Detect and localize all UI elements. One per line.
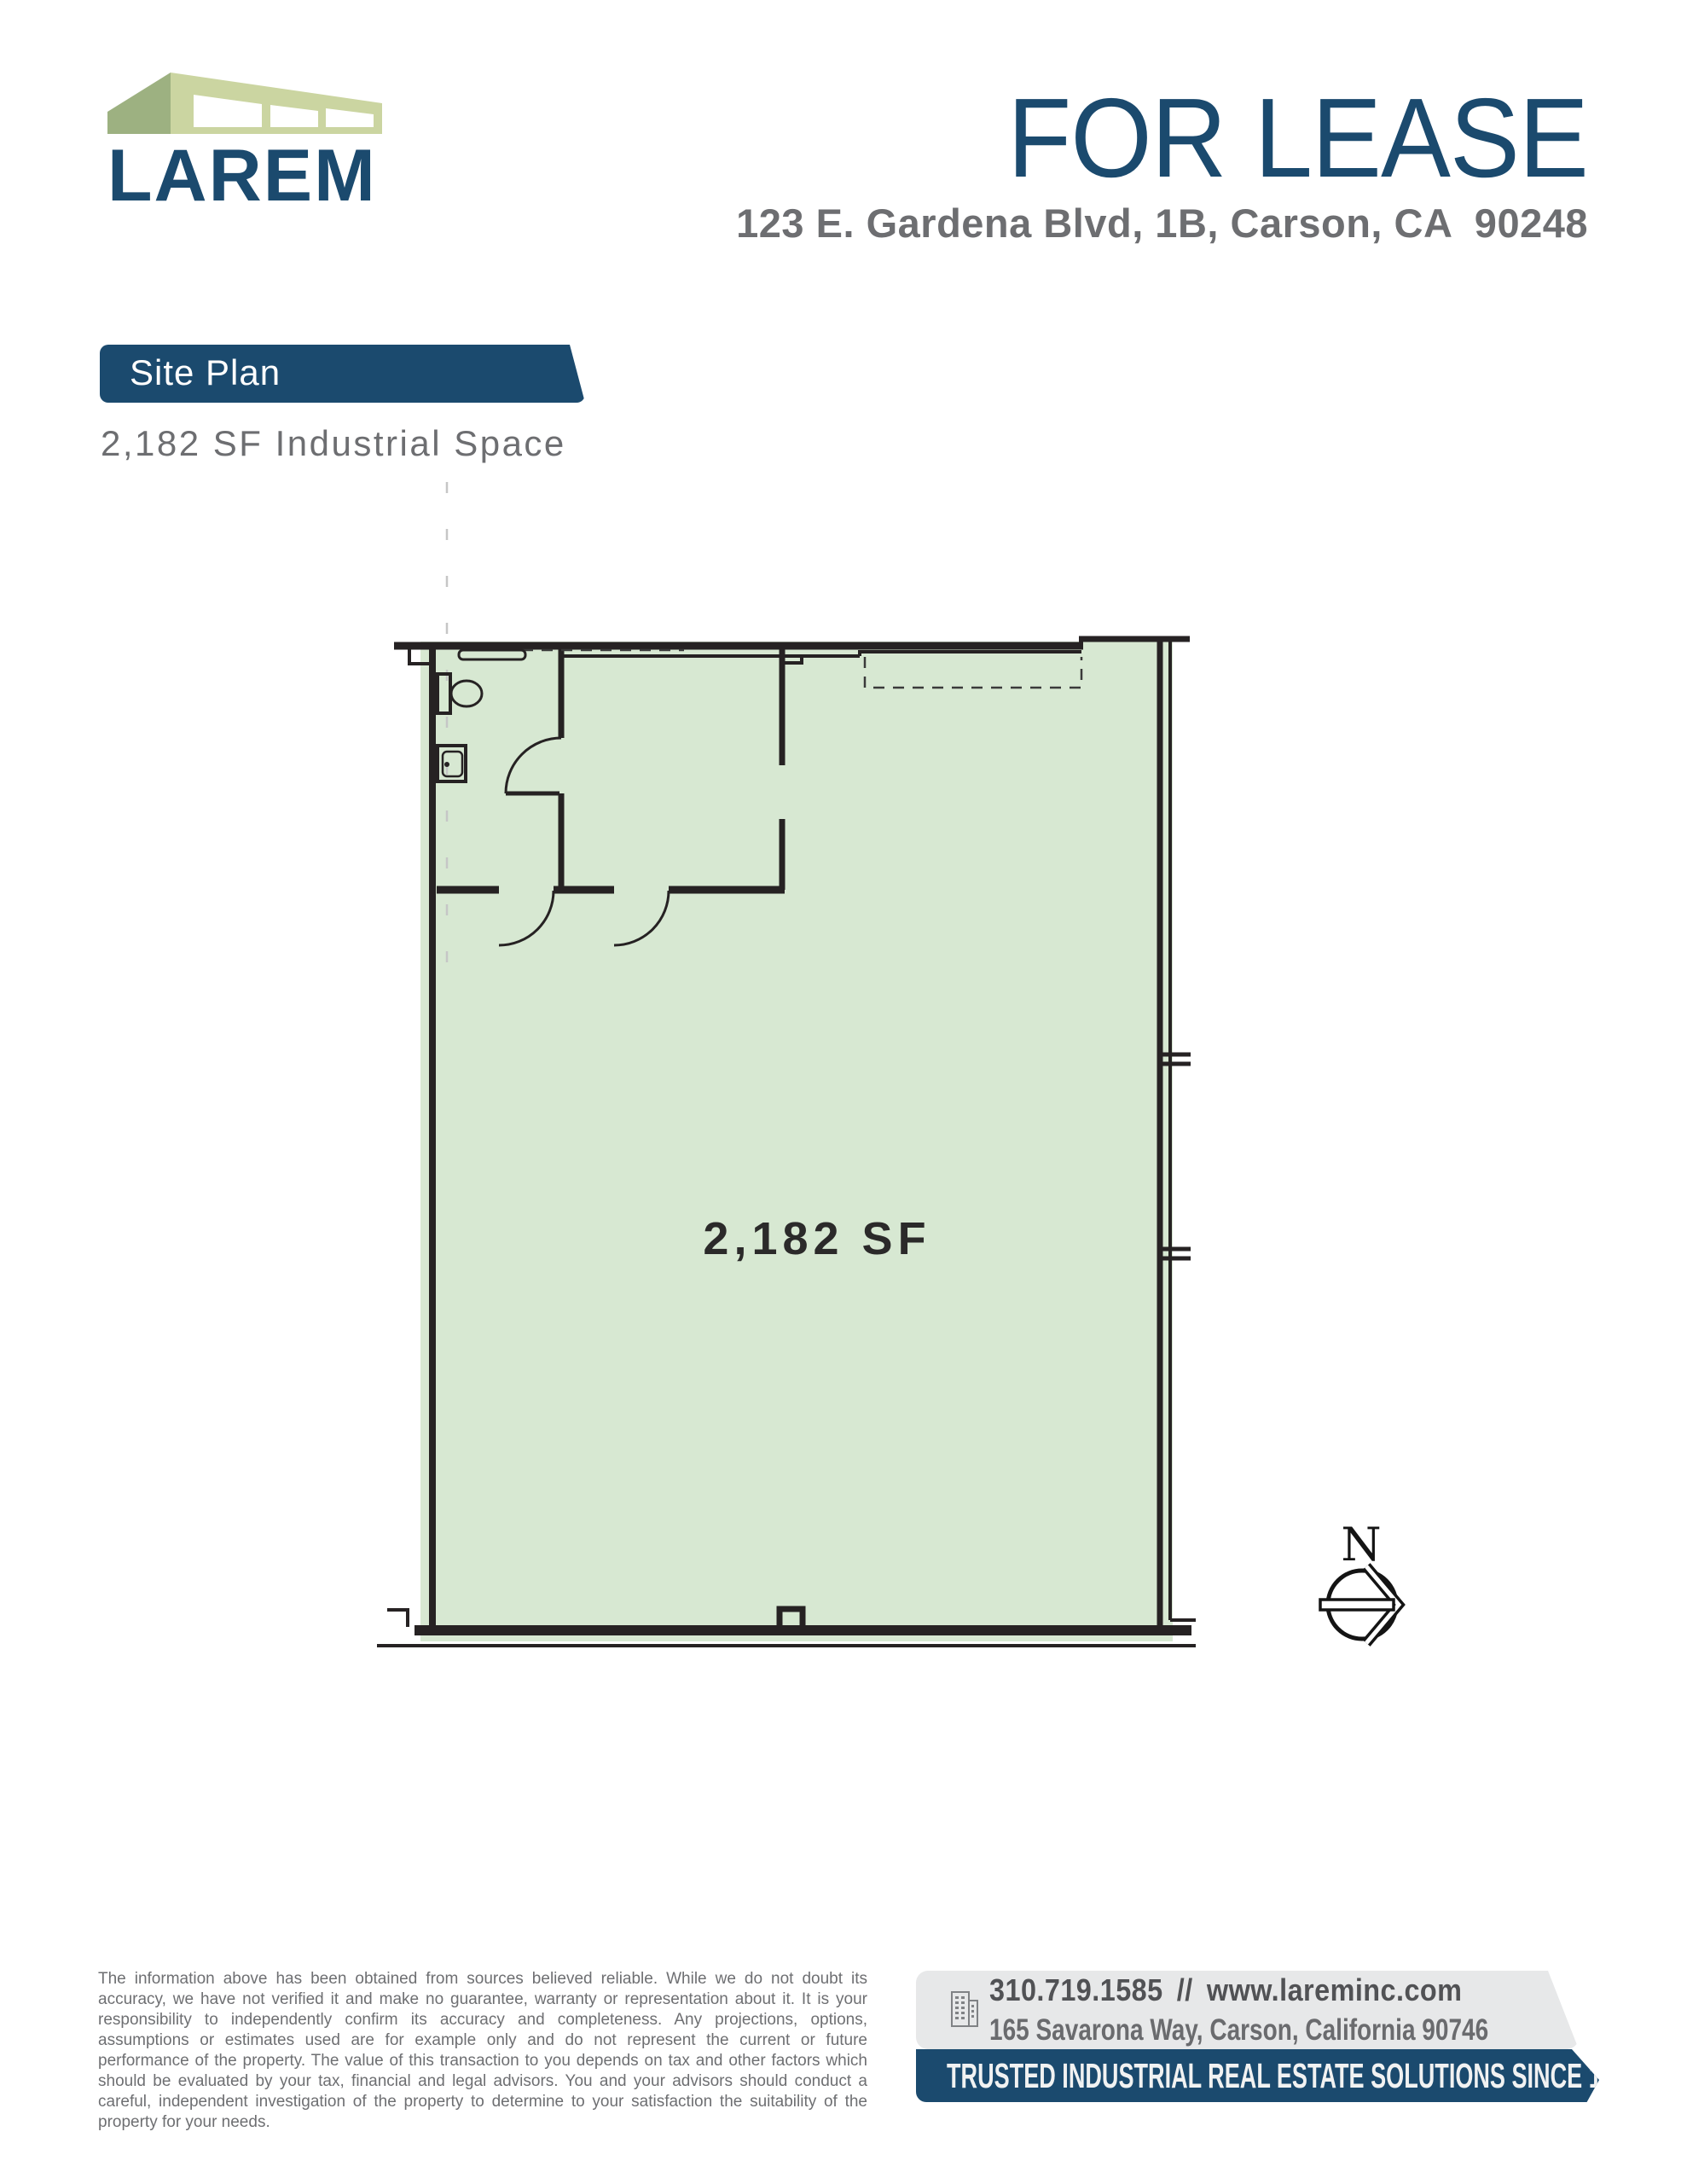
contact-lines: 310.719.1585//www.lareminc.com 165 Savar… — [989, 1972, 1613, 2047]
building-icon — [950, 1989, 979, 2032]
company-logo: LAREM — [107, 73, 382, 209]
area-label: 2,182 SF — [703, 1213, 930, 1264]
site-plan-banner: Site Plan — [100, 345, 585, 403]
sink-faucet-icon — [444, 762, 449, 767]
brand-name: LAREM — [107, 142, 382, 209]
listing-status-title: FOR LEASE — [1007, 82, 1588, 195]
contact-panel: 310.719.1585//www.lareminc.com 165 Savar… — [916, 1971, 1579, 2049]
separator-slashes: // — [1163, 1972, 1207, 2007]
phone-and-website-line: 310.719.1585//www.lareminc.com — [989, 1972, 1551, 2008]
legal-disclaimer: The information above has been obtained … — [98, 1969, 867, 2133]
north-arrow-icon: N — [1320, 1518, 1399, 1643]
phone-number: 310.719.1585 — [989, 1972, 1163, 2007]
space-subtitle: 2,182 SF Industrial Space — [101, 423, 566, 464]
property-address: 123 E. Gardena Blvd, 1B, Carson, CA 9024… — [736, 200, 1588, 247]
tagline-label: TRUSTED INDUSTRIAL REAL ESTATE SOLUTIONS… — [947, 2049, 1640, 2102]
flyer-page: LAREM FOR LEASE 123 E. Gardena Blvd, 1B,… — [0, 0, 1687, 2184]
website-link[interactable]: www.lareminc.com — [1207, 1972, 1463, 2007]
north-label: N — [1341, 1518, 1381, 1571]
warehouse-roof-icon — [107, 73, 382, 134]
tagline-banner: TRUSTED INDUSTRIAL REAL ESTATE SOLUTIONS… — [916, 2049, 1599, 2102]
floor-plan: 2,182 SF N — [358, 461, 1467, 1706]
site-plan-banner-label: Site Plan — [100, 345, 585, 401]
office-address: 165 Savarona Way, Carson, California 907… — [989, 2013, 1488, 2047]
